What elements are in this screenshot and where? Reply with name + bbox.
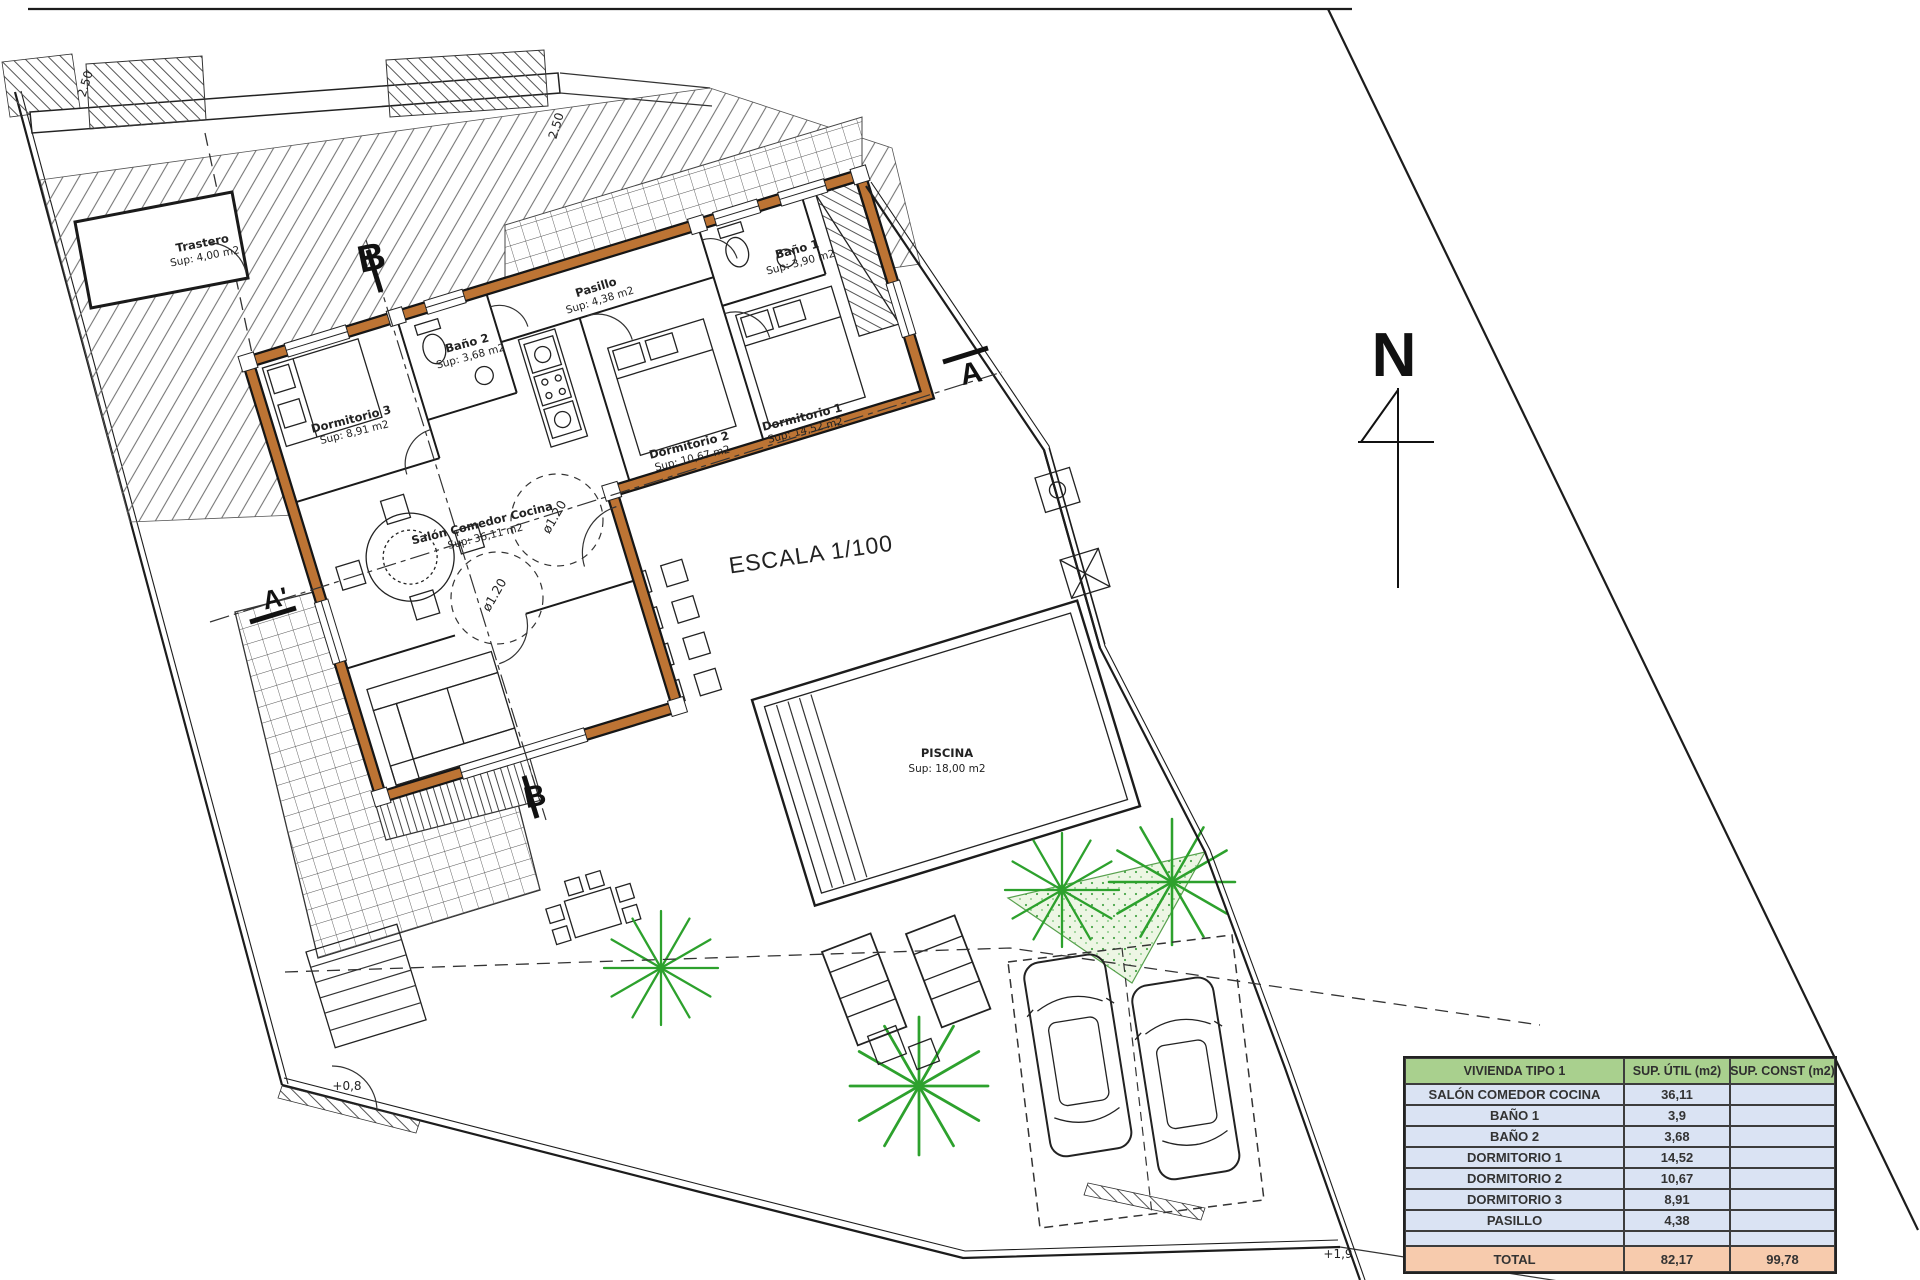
section-marker-b-bottom: B [521,778,549,815]
table-cell: BAÑO 2 [1405,1126,1624,1147]
table-header-sup-util: SUP. ÚTIL (m2) [1624,1058,1730,1084]
table-cell [1730,1084,1835,1105]
ramp-hatch-left [278,1086,420,1133]
table-cell [1730,1189,1835,1210]
corner-hatch [2,54,80,117]
car-1 [1019,952,1137,1159]
level-label-terrace: +0,8 [332,1079,361,1093]
table-cell [1405,1231,1624,1246]
palm-tree-1 [604,911,718,1025]
table-cell [1730,1147,1835,1168]
area-label-piscina: Sup: 18,00 m2 [908,763,985,775]
equipment-box-2 [1060,548,1110,598]
table-cell: 36,11 [1624,1084,1730,1105]
table-cell [1730,1168,1835,1189]
table-cell: PASILLO [1405,1210,1624,1231]
table-cell: DORMITORIO 1 [1405,1147,1624,1168]
sun-lounger-2 [906,915,990,1027]
table-cell: BAÑO 1 [1405,1105,1624,1126]
table-cell [1624,1231,1730,1246]
table-cell [1730,1210,1835,1231]
scale-label: ESCALA 1/100 [727,530,894,579]
table-total-const: 99,78 [1730,1246,1835,1272]
table-cell: DORMITORIO 2 [1405,1168,1624,1189]
ramp-hatch-right [1084,1183,1205,1220]
table-cell: 4,38 [1624,1210,1730,1231]
table-cell: SALÓN COMEDOR COCINA [1405,1084,1624,1105]
table-total-util: 82,17 [1624,1246,1730,1272]
table-total-label: TOTAL [1405,1246,1624,1272]
outdoor-dining-set [540,863,641,944]
car-2 [1127,975,1245,1182]
room-label-piscina: PISCINA [921,746,973,760]
table-cell [1730,1231,1835,1246]
table-cell [1730,1105,1835,1126]
table-cell: 3,9 [1624,1105,1730,1126]
level-label-street: +1,9 [1323,1247,1352,1261]
side-table [868,1026,940,1070]
table-header-dwelling: VIVIENDA TIPO 1 [1405,1058,1624,1084]
palm-tree-2 [850,1017,988,1155]
table-cell: DORMITORIO 3 [1405,1189,1624,1210]
table-cell: 10,67 [1624,1168,1730,1189]
sun-lounger-1 [822,933,906,1045]
north-arrow: N [1358,321,1434,588]
parking-area [1008,935,1264,1228]
table-cell: 14,52 [1624,1147,1730,1168]
table-header-sup-const: SUP. CONST (m2) [1730,1058,1835,1084]
table-cell [1730,1126,1835,1147]
section-marker-a-prime: A' [260,581,291,616]
north-label: N [1372,321,1417,390]
level-labels: +0,8 +1,9 [332,1079,1352,1261]
table-cell: 8,91 [1624,1189,1730,1210]
section-marker-a: A [957,355,985,392]
table-cell: 3,68 [1624,1126,1730,1147]
areas-table: VIVIENDA TIPO 1 SUP. ÚTIL (m2) SUP. CONS… [1403,1056,1837,1274]
